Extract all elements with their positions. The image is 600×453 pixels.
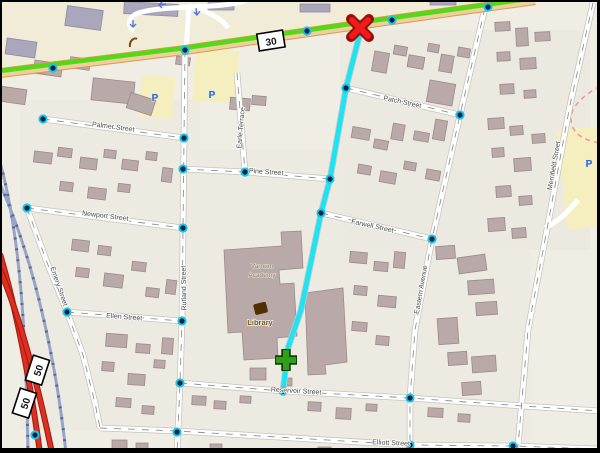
parking-icon: P bbox=[586, 159, 593, 170]
destination-marker[interactable] bbox=[351, 19, 369, 37]
map-viewport[interactable]: 30 50 50 Palmer Street Patch Street Pine… bbox=[0, 0, 600, 453]
parking-icon: P bbox=[209, 90, 216, 101]
academy-label-line2: Academy bbox=[248, 272, 276, 279]
street-label-rutland: Rutland Street bbox=[181, 266, 189, 311]
map-canvas[interactable]: 30 50 50 Palmer Street Patch Street Pine… bbox=[0, 0, 600, 453]
parking-icon: P bbox=[152, 93, 159, 104]
route-30-shield-text: 30 bbox=[265, 36, 278, 49]
route-30-shield: 30 bbox=[257, 30, 285, 51]
academy-label-line1: Varnum bbox=[251, 263, 273, 270]
library-label: Library bbox=[247, 318, 273, 327]
